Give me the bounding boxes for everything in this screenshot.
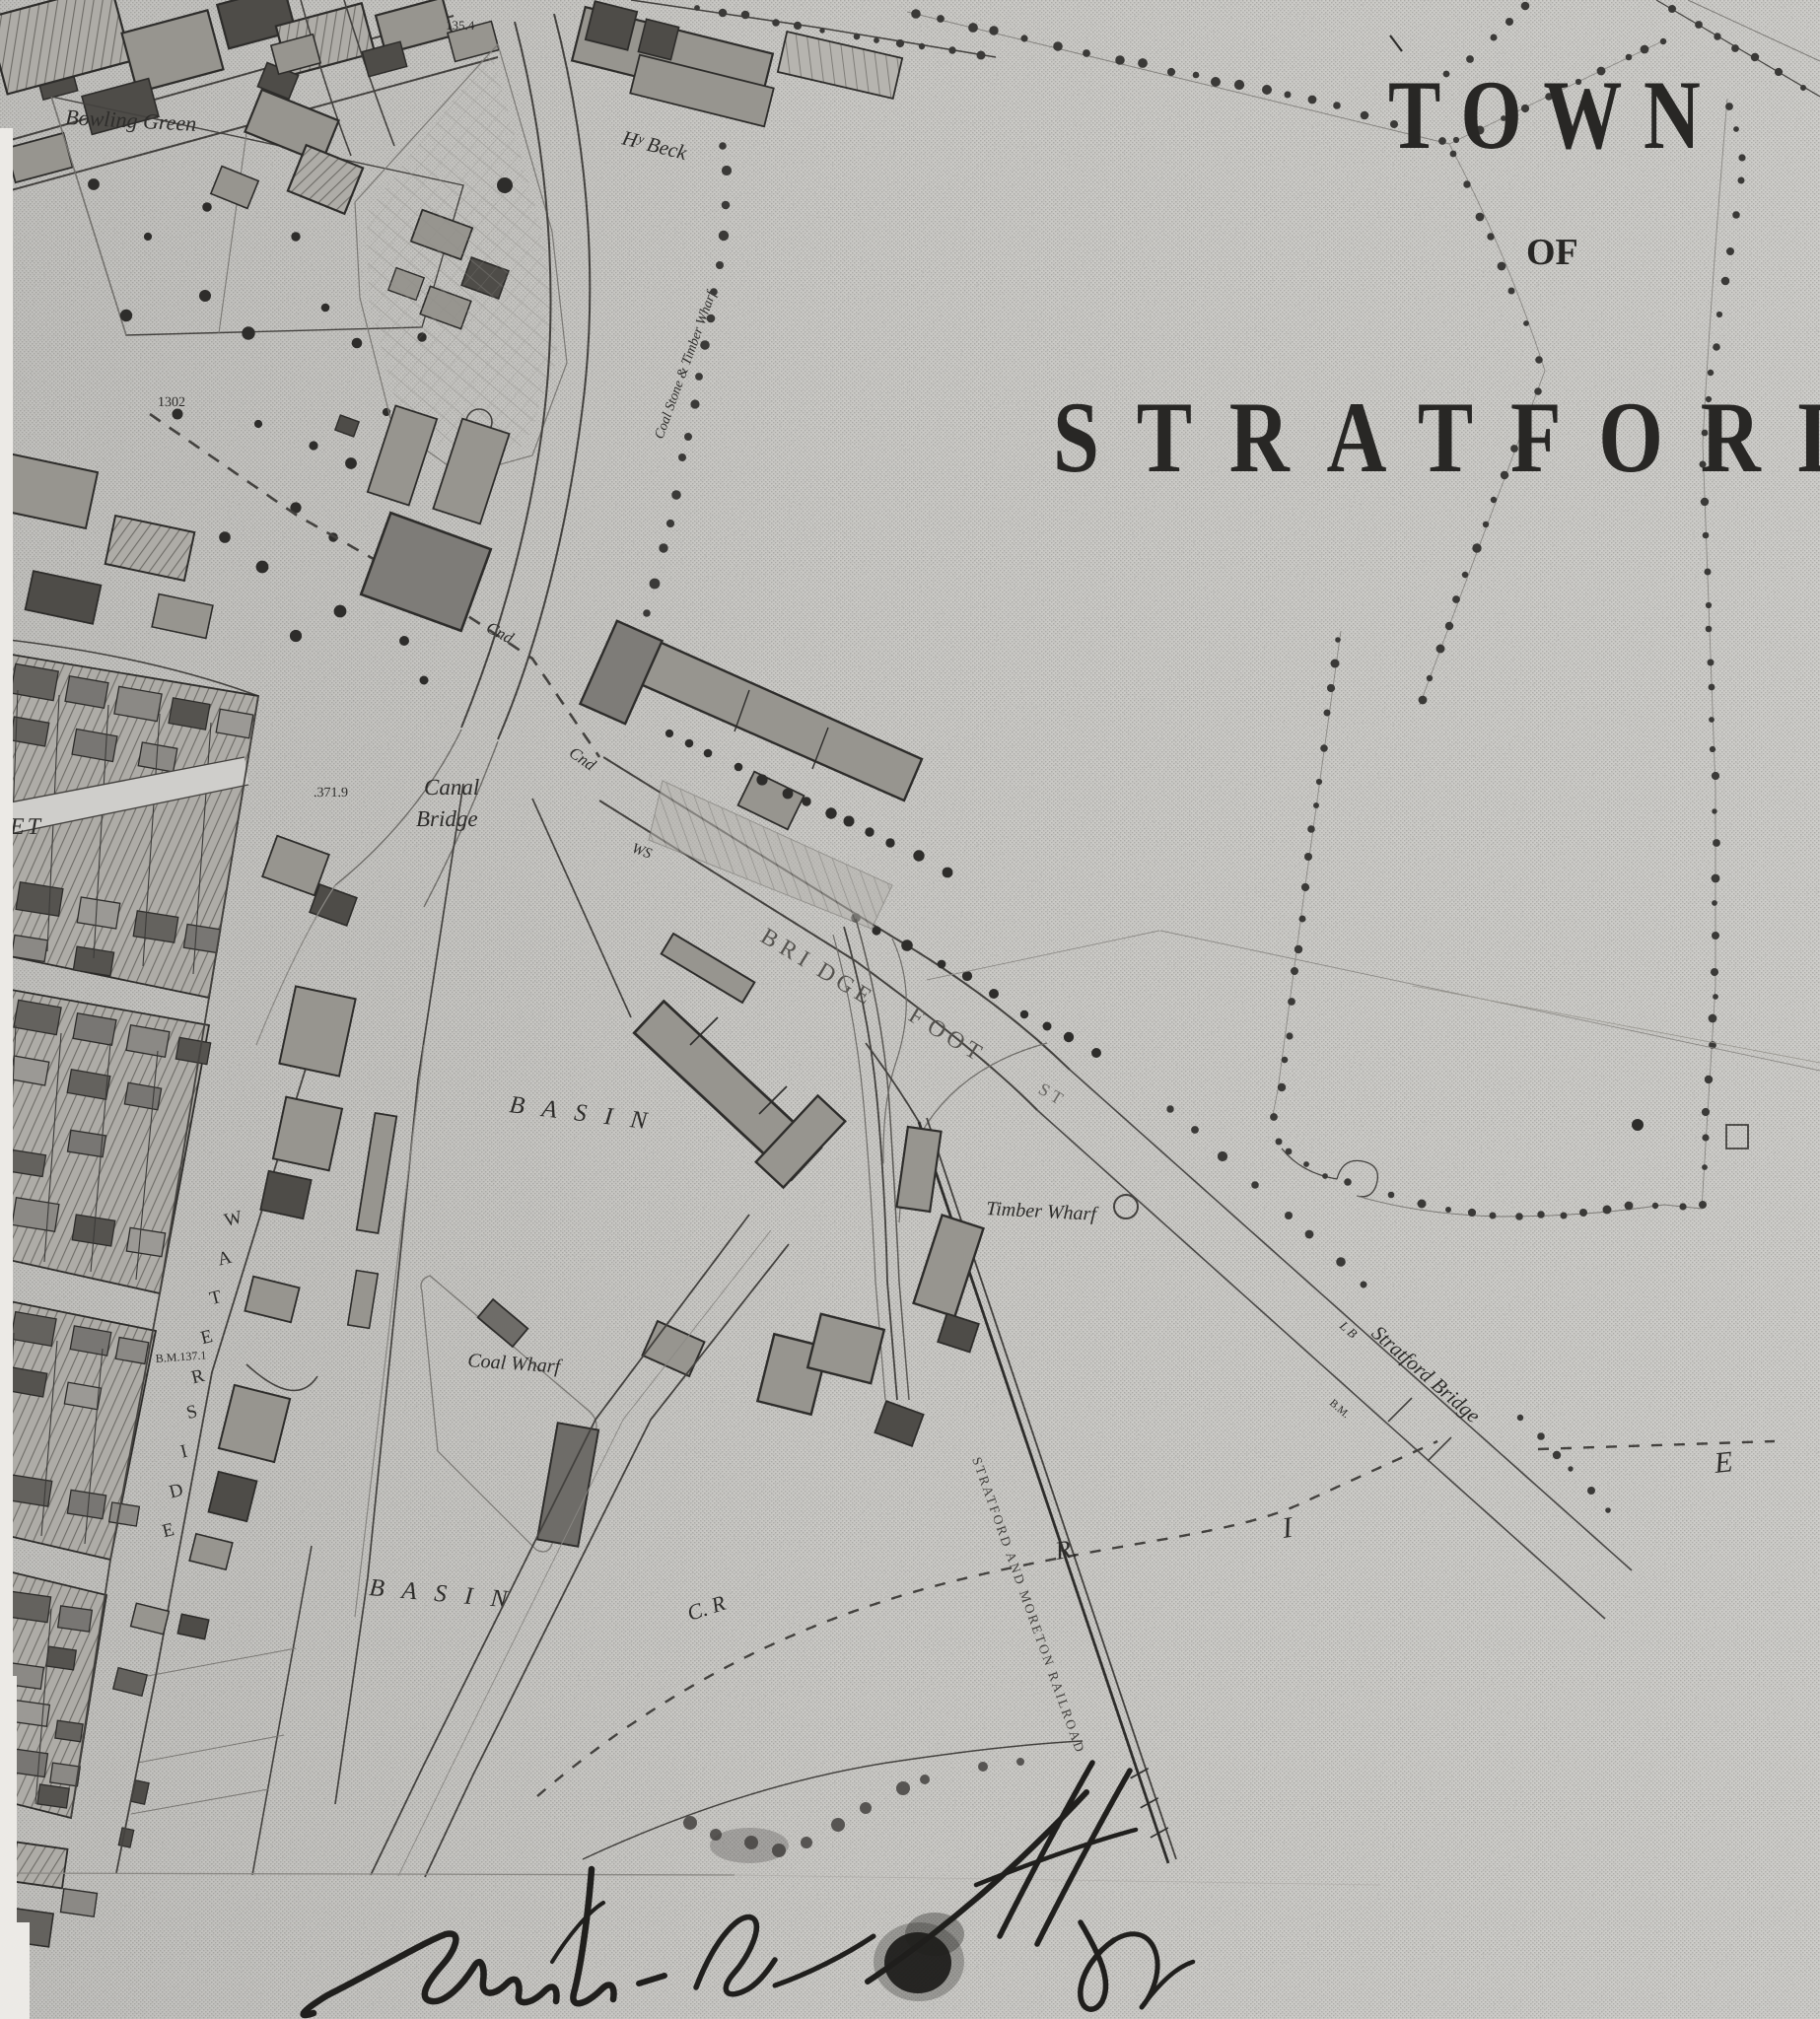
svg-text:TOWN: TOWN [1388,60,1721,170]
svg-text:135.4: 135.4 [446,18,475,33]
svg-text:.371.9: .371.9 [314,786,348,801]
svg-text:Bridge: Bridge [416,806,478,831]
svg-text:OF: OF [1526,232,1578,273]
svg-text:R.: R. [1052,1533,1080,1566]
svg-text:STRATFORD: STRATFORD [1053,382,1820,494]
svg-text:E: E [1712,1445,1734,1480]
svg-text:1302: 1302 [158,395,185,410]
svg-text:Canal: Canal [424,775,479,800]
svg-text:ET: ET [9,814,43,840]
